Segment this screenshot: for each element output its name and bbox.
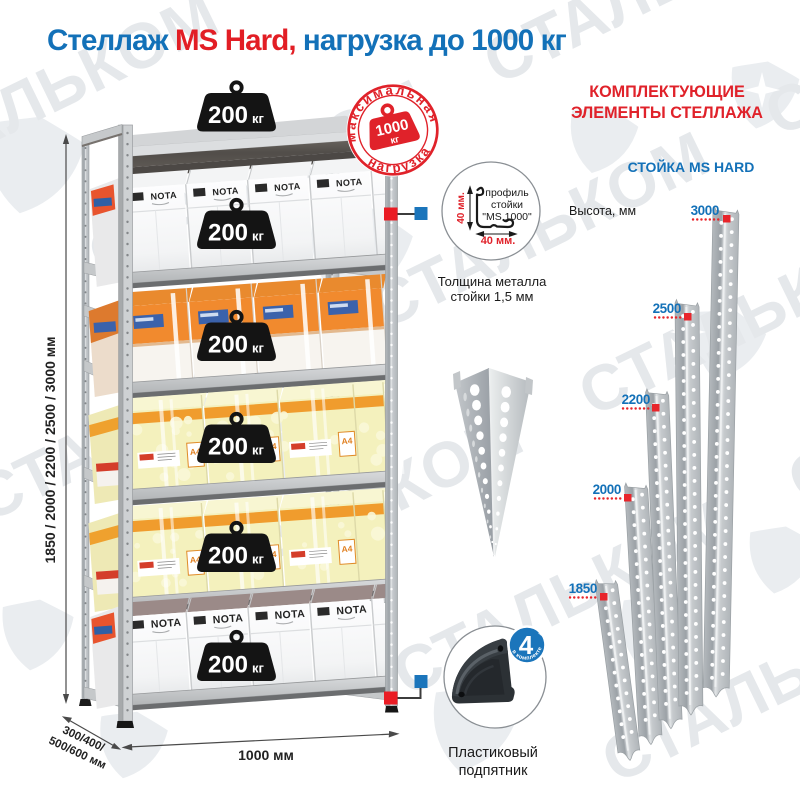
svg-text:профиль: профиль <box>485 187 529 199</box>
svg-text:"MS 1000": "MS 1000" <box>482 211 532 223</box>
svg-text:NOTA: NOTA <box>336 177 363 189</box>
svg-text:кг: кг <box>252 443 265 458</box>
svg-text:NOTA: NOTA <box>212 185 239 197</box>
svg-text:кг: кг <box>252 552 265 567</box>
svg-text:1850 / 2000 / 2200 / 2500 / 30: 1850 / 2000 / 2200 / 2500 / 3000 мм <box>42 336 58 563</box>
svg-text:2200: 2200 <box>622 392 650 407</box>
svg-text:стойки 1,5 мм: стойки 1,5 мм <box>451 289 534 304</box>
svg-text:NOTA: NOTA <box>274 181 301 193</box>
svg-text:200: 200 <box>208 652 248 679</box>
svg-text:кг: кг <box>252 661 265 676</box>
svg-text:подпятник: подпятник <box>459 763 529 779</box>
svg-text:СТОЙКА MS HARD: СТОЙКА MS HARD <box>628 158 755 175</box>
svg-text:Высота, мм: Высота, мм <box>569 204 636 218</box>
svg-text:200: 200 <box>208 434 248 461</box>
svg-text:кг: кг <box>252 341 265 356</box>
svg-text:Толщина металла: Толщина металла <box>438 274 547 289</box>
svg-text:200: 200 <box>208 220 248 247</box>
svg-text:2000: 2000 <box>593 482 621 497</box>
svg-text:A4: A4 <box>341 543 353 554</box>
svg-text:1000 мм: 1000 мм <box>238 747 294 763</box>
svg-text:40 мм.: 40 мм. <box>481 235 516 247</box>
svg-text:40 мм.: 40 мм. <box>456 192 467 224</box>
svg-text:200: 200 <box>208 332 248 359</box>
svg-text:200: 200 <box>208 102 248 129</box>
svg-text:Стеллаж MS Hard, нагрузка до 1: Стеллаж MS Hard, нагрузка до 1000 кг <box>47 24 566 57</box>
svg-text:Пластиковый: Пластиковый <box>448 745 538 761</box>
svg-text:A4: A4 <box>341 435 353 446</box>
svg-text:3000: 3000 <box>691 203 719 218</box>
svg-text:кг: кг <box>252 229 265 244</box>
svg-text:ЭЛЕМЕНТЫ СТЕЛЛАЖА: ЭЛЕМЕНТЫ СТЕЛЛАЖА <box>571 104 763 122</box>
svg-text:2500: 2500 <box>653 301 681 316</box>
svg-text:1850: 1850 <box>569 581 597 596</box>
svg-text:стойки: стойки <box>491 199 523 211</box>
svg-text:КОМПЛЕКТУЮЩИЕ: КОМПЛЕКТУЮЩИЕ <box>589 83 745 101</box>
svg-text:NOTA: NOTA <box>336 603 367 617</box>
svg-text:кг: кг <box>252 111 265 126</box>
svg-text:NOTA: NOTA <box>150 190 177 202</box>
svg-text:NOTA: NOTA <box>212 612 243 626</box>
svg-text:NOTA: NOTA <box>274 608 305 622</box>
svg-text:NOTA: NOTA <box>151 617 182 631</box>
svg-text:200: 200 <box>208 543 248 570</box>
